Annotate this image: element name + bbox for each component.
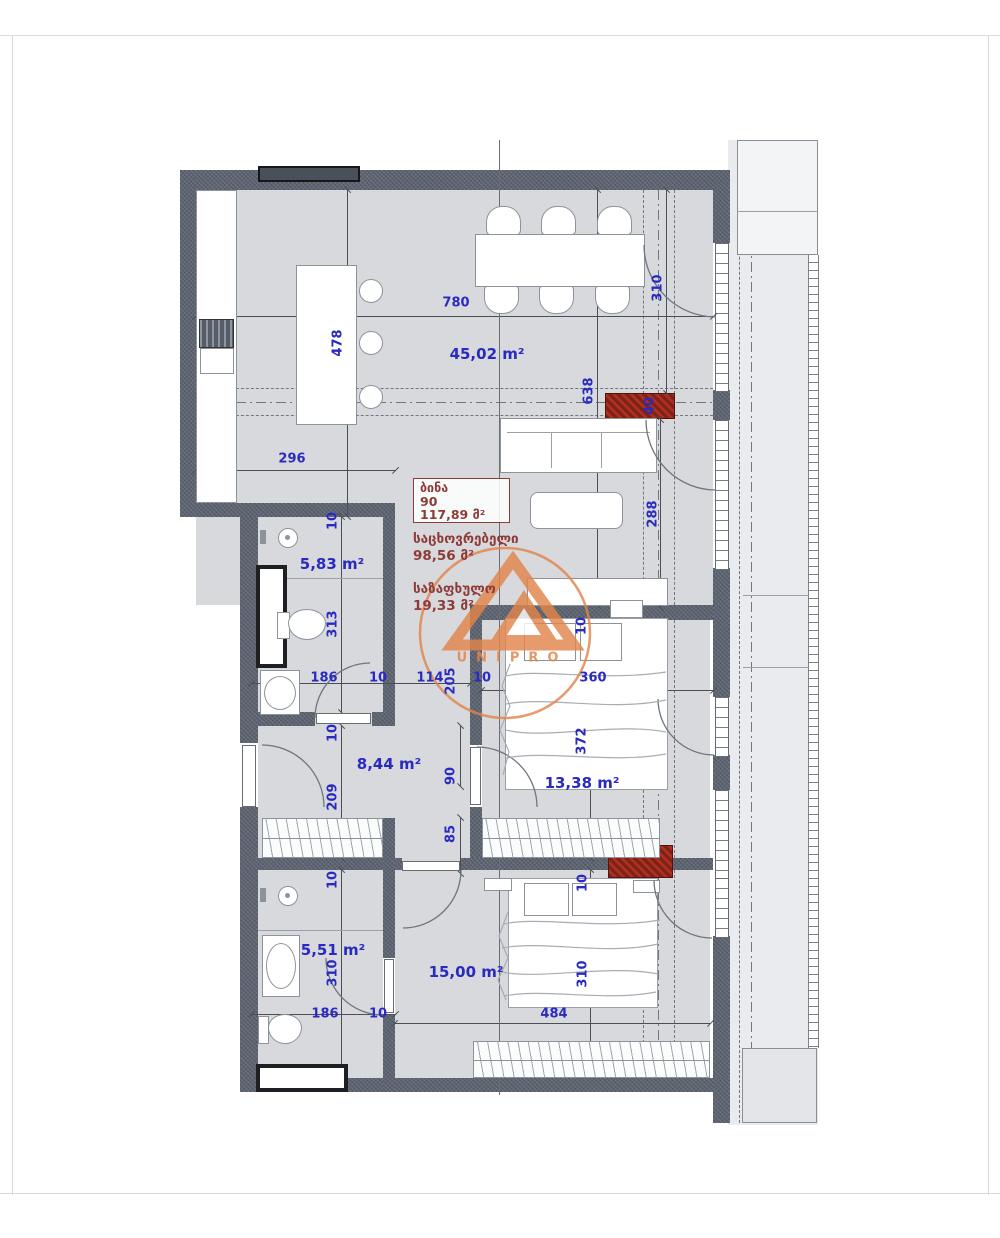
- glazed-door-bedroom2: [715, 878, 729, 938]
- dashdot-line-balcony: [751, 142, 752, 1123]
- dim-label-484: 484: [540, 1007, 567, 1022]
- balcony-top-box: [737, 140, 818, 255]
- dim-label-205: 205: [444, 667, 459, 694]
- nightstand: [484, 878, 512, 891]
- bar-stool: [359, 331, 383, 355]
- sink-bowl: [264, 676, 296, 710]
- wall-bathroom2-right: [383, 1015, 395, 1092]
- room-label-bathroom1: 5,83 m²: [300, 555, 364, 573]
- dim-label-313: 313: [326, 610, 341, 637]
- dim-label-296: 296: [278, 452, 305, 467]
- living-area-value: 98,56 მ²: [413, 548, 474, 564]
- dim-label-10: 10: [326, 512, 341, 530]
- sofa-seam: [551, 432, 552, 468]
- dining-chair: [486, 206, 521, 236]
- door-leaf-bathroom2: [384, 959, 394, 1013]
- dining-table: [475, 234, 645, 287]
- dashed-line-balcony: [739, 142, 740, 1123]
- dim-line-85: [460, 818, 461, 873]
- shower-divider: [258, 930, 383, 931]
- room-label-bathroom2: 5,51 m²: [301, 941, 365, 959]
- dim-label-310-bath2: 310: [326, 959, 341, 986]
- dim-label-90: 90: [444, 767, 459, 785]
- dim-label-10: 10: [326, 724, 341, 742]
- shower-valve: [260, 530, 266, 544]
- page-edge-left: [12, 35, 13, 1195]
- wall-step: [180, 503, 395, 517]
- shower-head: [278, 886, 298, 906]
- dim-label-10: 10: [473, 671, 491, 686]
- wall-bathroom1-right: [383, 517, 395, 726]
- sofa-seam: [601, 432, 602, 468]
- kitchen-island: [296, 265, 357, 425]
- bar-stool: [359, 279, 383, 303]
- wall-bedroom1-bedroom2: [460, 858, 713, 870]
- summer-area-label: საზაფხულო: [413, 581, 496, 597]
- summer-area-value: 19,33 მ²: [413, 598, 474, 614]
- dim-line-484: [395, 1023, 710, 1024]
- watermark-brand: UNIPRO: [457, 651, 568, 666]
- wall-right: [713, 185, 730, 243]
- shower-valve: [260, 888, 266, 902]
- page-edge-top: [0, 35, 1000, 36]
- wall-bathroom2-right: [383, 870, 395, 958]
- dim-label-186: 186: [311, 1007, 338, 1022]
- balcony-glazing: [808, 255, 819, 1048]
- door-leaf-bathroom1: [316, 713, 371, 724]
- dim-label-40: 40: [643, 397, 658, 415]
- glazed-door-living-1: [715, 243, 729, 392]
- room-label-hallway: 8,44 m²: [357, 755, 421, 773]
- apartment-total-area: 117,89 მ²: [420, 508, 509, 522]
- dim-line-313: [341, 517, 342, 712]
- apartment-unit-number: 90: [420, 495, 509, 509]
- shaft-living: [605, 393, 675, 419]
- shower-head-dot: [285, 893, 290, 898]
- dim-label-186: 186: [310, 671, 337, 686]
- shower-head-dot: [285, 535, 290, 540]
- dim-label-372: 372: [575, 727, 590, 754]
- coffee-table: [530, 492, 623, 529]
- bath-cabinet: [256, 1064, 348, 1092]
- wall-left-lower: [240, 807, 258, 1092]
- shower-divider: [287, 578, 383, 579]
- glazed-window-bedroom: [715, 790, 729, 880]
- room-label-bedroom1: 13,38 m²: [545, 774, 620, 792]
- wall-bathroom1-bottom: [372, 712, 395, 726]
- dining-chair: [539, 284, 574, 314]
- glazed-door-living-2: [715, 420, 729, 570]
- nightstand: [610, 600, 643, 618]
- wall-hall-bathroom2: [240, 858, 402, 870]
- wardrobe-rail: [474, 1060, 709, 1061]
- dim-label-310-bed2: 310: [576, 960, 591, 987]
- door-leaf-bedroom2: [402, 861, 460, 871]
- dim-line-90: [460, 726, 461, 786]
- stove: [199, 319, 234, 348]
- pillow: [524, 883, 569, 916]
- dim-line-780: [196, 316, 713, 317]
- floor-balcony: [728, 140, 818, 1125]
- floor-corridor: [395, 605, 470, 726]
- dim-label-10: 10: [369, 1007, 387, 1022]
- dim-label-209: 209: [326, 783, 341, 810]
- dim-label-114: 114: [416, 671, 443, 686]
- page-edge-right: [988, 35, 989, 1195]
- dim-label-310-top: 310: [651, 274, 666, 301]
- nightstand: [633, 880, 660, 893]
- floor-plan-page: ბინა 90 117,89 მ² საცხოვრებელი 98,56 მ² …: [0, 0, 1000, 1238]
- dim-label-780: 780: [442, 296, 469, 311]
- door-leaf-entrance: [242, 745, 256, 807]
- dining-chair: [595, 284, 630, 314]
- dim-label-10: 10: [369, 671, 387, 686]
- dim-label-478: 478: [331, 329, 346, 356]
- glazed-door-bedroom1: [715, 697, 729, 757]
- wall-right: [713, 936, 730, 1078]
- wall-passage-left: [383, 818, 395, 870]
- dining-chair: [541, 206, 576, 236]
- bar-stool: [359, 385, 383, 409]
- room-label-living: 45,02 m²: [450, 345, 525, 363]
- apartment-info-box: ბინა 90 117,89 მ²: [413, 478, 510, 523]
- wardrobe-rail: [263, 838, 382, 839]
- sink-bowl: [266, 943, 296, 989]
- wall-left-upper: [180, 170, 196, 517]
- balcony-divider: [743, 667, 817, 668]
- dim-label-360: 360: [579, 671, 606, 686]
- wardrobe-bedroom2: [473, 1041, 710, 1078]
- wall-right: [713, 568, 730, 697]
- sideboard: [527, 578, 668, 606]
- shower-head: [278, 528, 298, 548]
- wardrobe-hall: [262, 818, 383, 858]
- sofa: [500, 418, 657, 473]
- dining-chair: [597, 206, 632, 236]
- kitchen-sink: [200, 348, 234, 374]
- dim-label-638: 638: [582, 377, 597, 404]
- balcony-divider: [737, 211, 818, 212]
- dim-label-288: 288: [646, 500, 661, 527]
- dining-chair: [484, 284, 519, 314]
- balcony-bottom-box: [742, 1048, 817, 1123]
- window-top-wall: [258, 166, 360, 182]
- apartment-unit-label: ბინა: [420, 481, 509, 495]
- wall-right: [713, 755, 730, 790]
- wall-right: [713, 390, 730, 420]
- door-leaf-bedroom1: [470, 747, 481, 805]
- dashed-line: [674, 620, 675, 858]
- sofa-back-line: [507, 432, 650, 433]
- dim-label-10: 10: [576, 874, 591, 892]
- dim-line-310-top: [666, 190, 667, 393]
- room-label-bedroom2: 15,00 m²: [429, 963, 504, 981]
- living-area-label: საცხოვრებელი: [413, 531, 519, 547]
- dim-label-10: 10: [575, 617, 590, 635]
- wardrobe-bedroom1: [482, 818, 660, 858]
- dim-line-310-bath2: [341, 870, 342, 1070]
- dashed-line: [196, 388, 713, 389]
- wall-right-corner: [713, 1078, 730, 1123]
- dim-label-85: 85: [444, 825, 459, 843]
- wardrobe-rail: [483, 838, 659, 839]
- balcony-divider: [743, 595, 817, 596]
- page-edge-bottom: [0, 1193, 1000, 1194]
- dim-label-10: 10: [326, 871, 341, 889]
